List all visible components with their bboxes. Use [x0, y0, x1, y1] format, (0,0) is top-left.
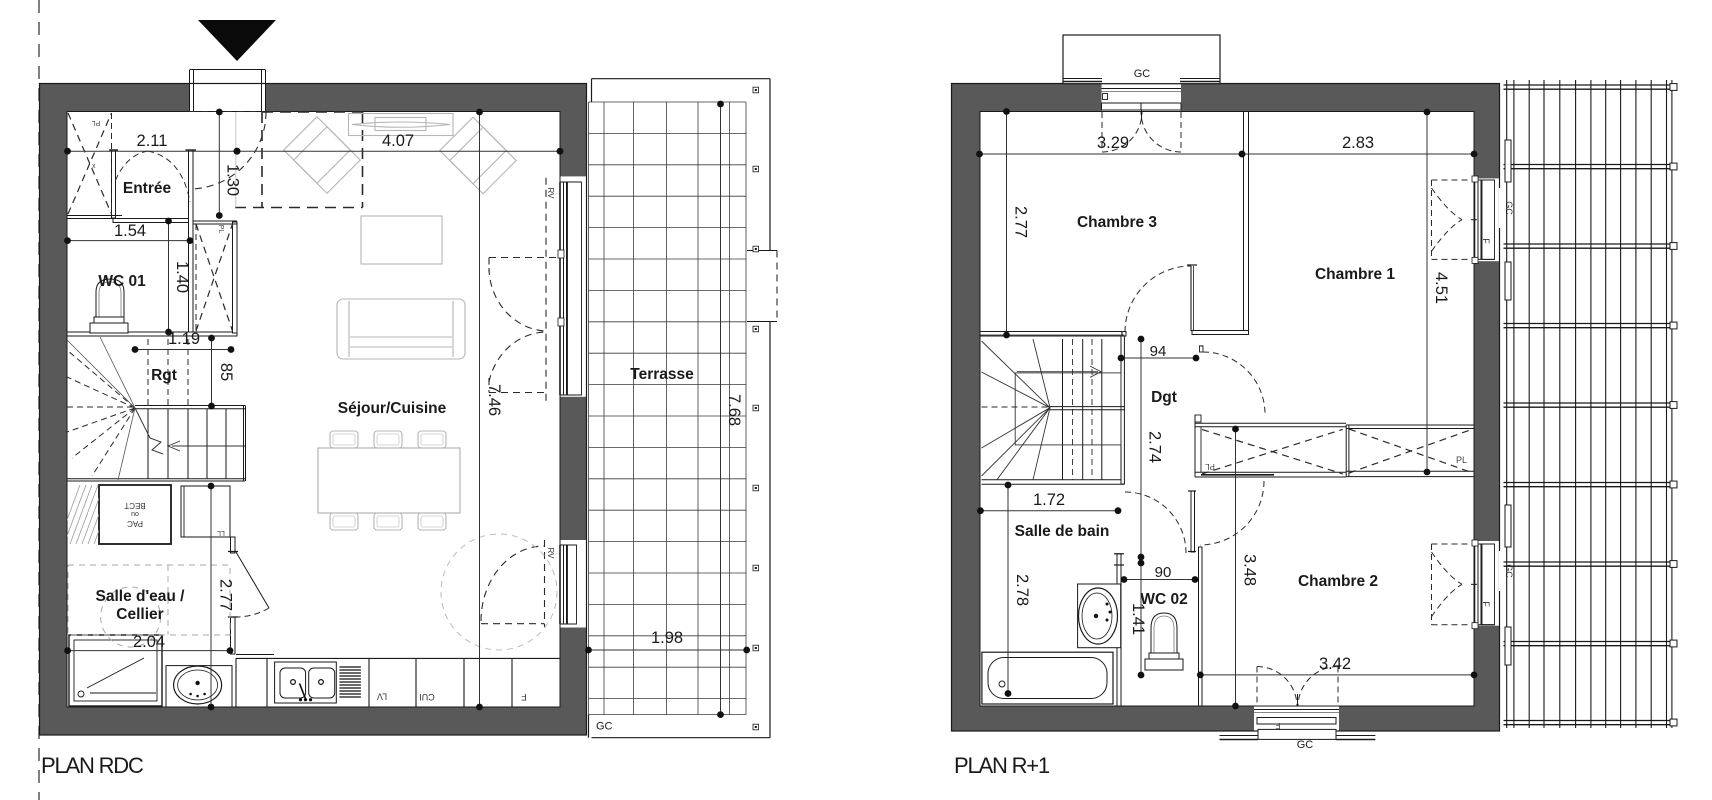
svg-text:PL: PL [217, 225, 224, 234]
svg-text:2.74: 2.74 [1146, 431, 1164, 463]
svg-text:1.98: 1.98 [651, 629, 683, 647]
svg-text:Séjour/Cuisine: Séjour/Cuisine [338, 400, 447, 417]
svg-text:1.19: 1.19 [168, 330, 200, 348]
svg-text:F: F [1481, 601, 1491, 607]
svg-text:F: F [1275, 721, 1280, 730]
svg-text:PLAN R+1: PLAN R+1 [954, 753, 1050, 778]
svg-text:GC: GC [1297, 739, 1314, 751]
svg-text:3.42: 3.42 [1319, 655, 1351, 673]
svg-text:Dgt: Dgt [1151, 389, 1177, 406]
svg-text:2.11: 2.11 [137, 132, 168, 150]
svg-text:1.40: 1.40 [173, 261, 191, 293]
svg-text:WC 02: WC 02 [1140, 591, 1187, 608]
svg-text:Rgt: Rgt [151, 367, 177, 384]
svg-text:BECT: BECT [124, 501, 145, 510]
svg-text:CUI: CUI [419, 692, 435, 702]
svg-text:RV: RV [546, 188, 555, 200]
svg-text:2.77: 2.77 [1012, 206, 1030, 238]
svg-text:PL: PL [92, 119, 101, 126]
svg-text:2.04: 2.04 [133, 633, 165, 651]
svg-text:PLAN RDC: PLAN RDC [41, 753, 144, 778]
svg-text:7.68: 7.68 [725, 394, 743, 426]
svg-text:2.78: 2.78 [1013, 574, 1031, 606]
svg-text:1.54: 1.54 [114, 222, 146, 240]
svg-text:7.46: 7.46 [485, 384, 503, 416]
svg-text:Chambre 1: Chambre 1 [1315, 266, 1395, 283]
svg-text:2.83: 2.83 [1342, 134, 1374, 152]
svg-text:WC 01: WC 01 [98, 273, 146, 290]
svg-text:LV: LV [377, 692, 387, 702]
svg-text:GC: GC [1134, 68, 1151, 80]
svg-text:Entrée: Entrée [123, 180, 172, 197]
svg-text:F: F [1481, 238, 1491, 244]
svg-text:PL: PL [1456, 455, 1467, 465]
svg-text:GC: GC [596, 721, 613, 733]
svg-text:4.51: 4.51 [1432, 272, 1450, 304]
svg-text:F: F [521, 692, 527, 702]
svg-text:PAC: PAC [127, 519, 143, 528]
svg-text:90: 90 [1155, 564, 1172, 581]
svg-text:RV: RV [546, 548, 555, 560]
svg-text:x: x [92, 163, 96, 170]
svg-text:LL: LL [217, 529, 225, 536]
svg-text:94: 94 [1150, 343, 1167, 360]
svg-text:1.30: 1.30 [224, 164, 242, 196]
svg-text:1.72: 1.72 [1033, 491, 1065, 509]
svg-text:4.07: 4.07 [382, 132, 414, 150]
svg-text:Salle d'eau /: Salle d'eau / [96, 588, 186, 605]
svg-text:2.77: 2.77 [217, 579, 235, 611]
svg-text:Chambre 2: Chambre 2 [1298, 573, 1378, 590]
svg-text:3.48: 3.48 [1241, 554, 1259, 586]
svg-text:ou: ou [131, 510, 139, 517]
svg-text:3.29: 3.29 [1097, 134, 1129, 152]
svg-text:Terrasse: Terrasse [630, 366, 694, 383]
svg-text:Cellier: Cellier [116, 606, 163, 623]
svg-text:GC: GC [1504, 201, 1514, 215]
svg-text:Chambre 3: Chambre 3 [1077, 214, 1157, 231]
svg-text:PL: PL [1205, 462, 1215, 471]
svg-text:Salle de bain: Salle de bain [1015, 523, 1110, 540]
svg-text:85: 85 [217, 363, 235, 381]
